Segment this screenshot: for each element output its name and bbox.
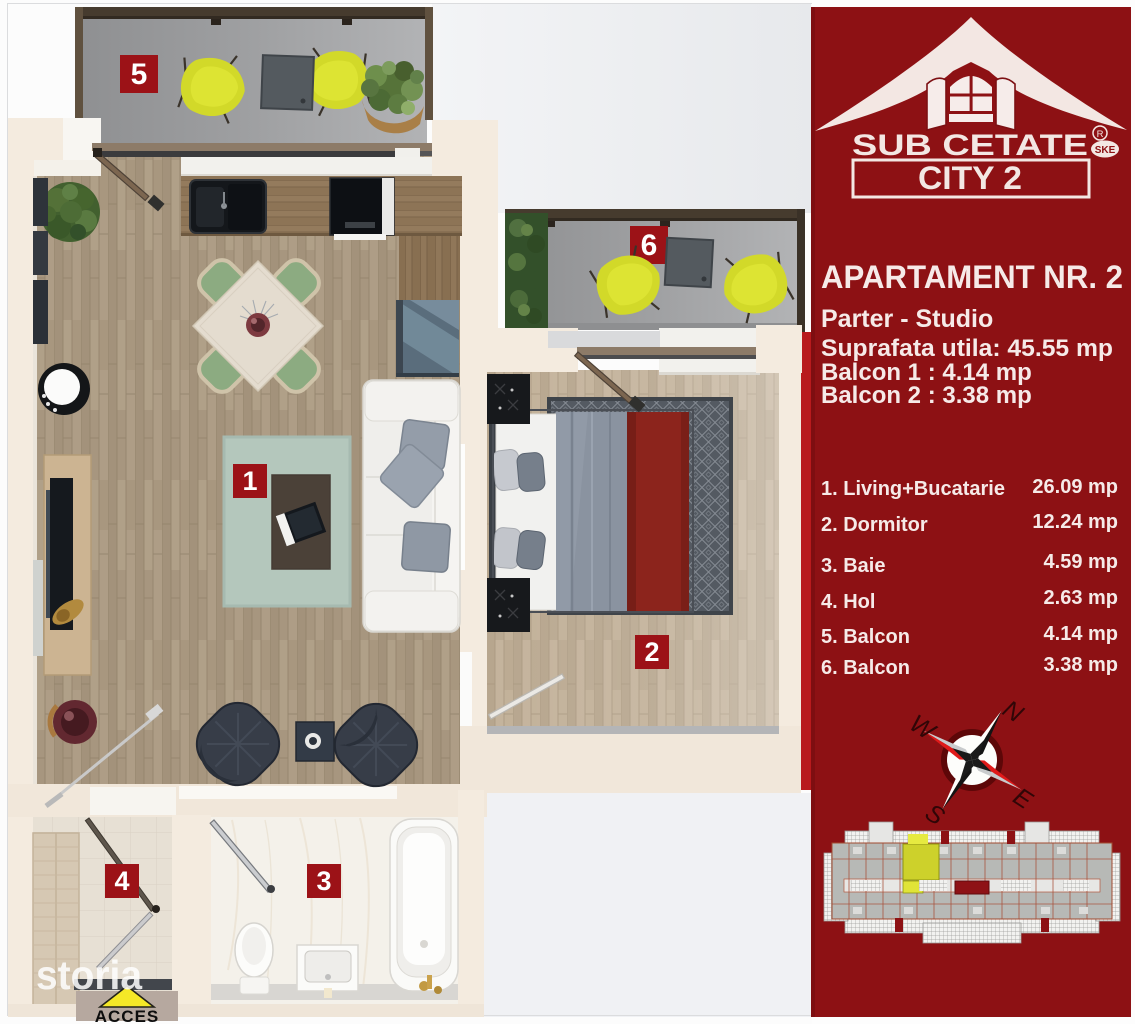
svg-text:3: 3 <box>316 866 331 896</box>
svg-text:2.63 mp: 2.63 mp <box>1044 587 1118 609</box>
svg-text:Parter - Studio: Parter - Studio <box>821 305 993 333</box>
svg-text:CITY 2: CITY 2 <box>918 160 1022 196</box>
svg-text:3. Baie: 3. Baie <box>821 555 885 577</box>
svg-text:ACCES: ACCES <box>95 1007 160 1024</box>
svg-text:4.14 mp: 4.14 mp <box>1044 623 1118 645</box>
svg-text:5: 5 <box>131 58 148 91</box>
svg-text:Balcon 2 : 3.38 mp: Balcon 2 : 3.38 mp <box>821 382 1032 409</box>
svg-text:SUB CETATE: SUB CETATE <box>852 129 1088 162</box>
svg-text:2: 2 <box>644 637 659 667</box>
svg-text:12.24 mp: 12.24 mp <box>1032 511 1118 533</box>
svg-text:1. Living+Bucatarie: 1. Living+Bucatarie <box>821 478 1005 500</box>
svg-text:4.59 mp: 4.59 mp <box>1044 551 1118 573</box>
svg-text:4. Hol: 4. Hol <box>821 591 875 613</box>
svg-text:6: 6 <box>641 229 658 262</box>
svg-text:26.09 mp: 26.09 mp <box>1032 476 1118 498</box>
svg-text:APARTAMENT NR. 2: APARTAMENT NR. 2 <box>821 259 1123 295</box>
svg-text:1: 1 <box>242 466 257 496</box>
svg-text:storia: storia <box>36 952 143 998</box>
svg-text:Suprafata utila: 45.55 mp: Suprafata utila: 45.55 mp <box>821 335 1113 362</box>
svg-text:6. Balcon: 6. Balcon <box>821 657 910 679</box>
svg-text:SKE: SKE <box>1095 145 1116 156</box>
svg-text:3.38 mp: 3.38 mp <box>1044 654 1118 676</box>
svg-text:5. Balcon: 5. Balcon <box>821 626 910 648</box>
svg-text:R: R <box>1097 129 1104 140</box>
svg-text:2. Dormitor: 2. Dormitor <box>821 514 928 536</box>
svg-text:4: 4 <box>114 866 129 896</box>
